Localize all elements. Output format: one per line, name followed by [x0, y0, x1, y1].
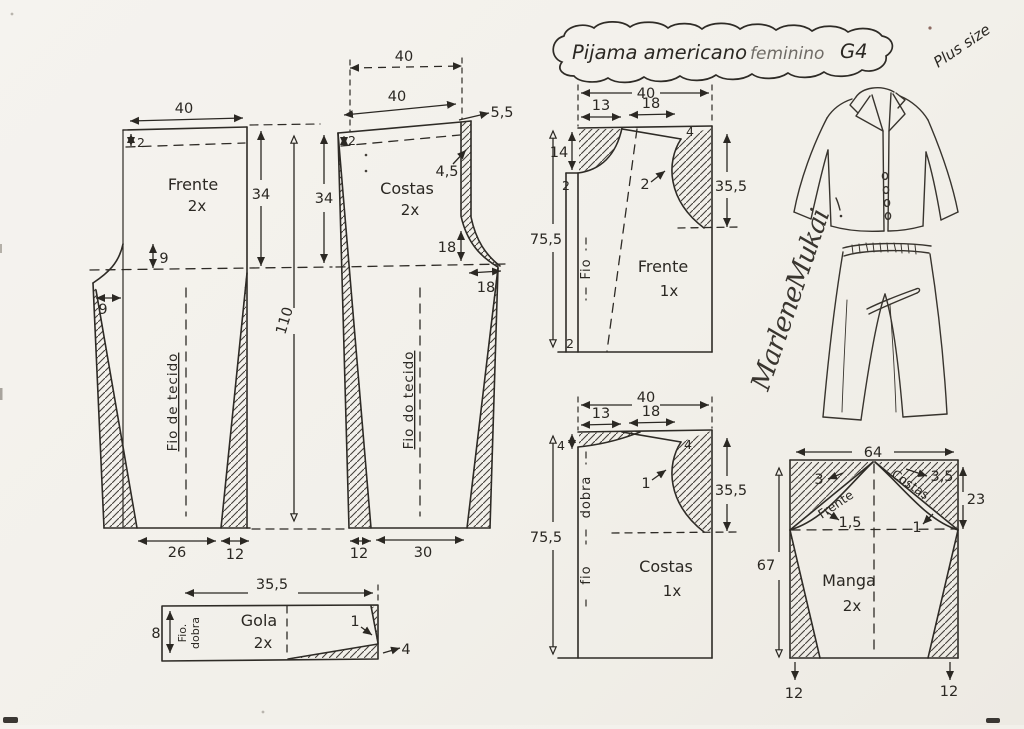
designer-signature: MarleneMukai [745, 205, 836, 395]
dim-collar-tip: 1 [350, 614, 359, 630]
dim-pants-back-hem-cut: 12 [350, 546, 368, 562]
top-back-grain-label: fio [579, 565, 594, 584]
dim-pants-front-side: 34 [252, 187, 270, 203]
plus-size-note: Plus size [930, 20, 993, 71]
top-front-qty: 1x [660, 282, 679, 300]
hatched-area [93, 284, 136, 527]
dim-pants-back-side: 34 [315, 191, 333, 207]
dim-pants-front-casing: 2 [137, 135, 145, 150]
top-back-label: Costas [639, 557, 693, 576]
underarm-line [612, 532, 738, 533]
dim-top-front-placket: 2 [562, 178, 570, 193]
dim-pants-back-hip-curve: 18 [438, 240, 456, 256]
dim-pants-front-crotch-ext: 9 [98, 302, 107, 318]
dim-sleeve-notch-front: 1,5 [838, 515, 861, 531]
dim-pants-front-hip-curve: 9 [159, 251, 168, 267]
dim-sleeve-cap-height: 23 [967, 492, 985, 508]
dim-top-back-shoulder: 18 [642, 404, 660, 420]
pants-front-label: Frente [168, 175, 218, 194]
title-audience: feminino [750, 44, 824, 64]
dim-sleeve-notch-back: 1 [912, 520, 921, 536]
dim-top-front-length: 75,5 [530, 232, 562, 248]
dim-sleeve-hem-left: 12 [785, 686, 803, 702]
dim-pants-back-seam-drop: 4,5 [435, 164, 458, 180]
dim-pants-back-waist-guide: 40 [395, 49, 413, 65]
dim-top-front-neck-width: 13 [592, 98, 610, 114]
dim-collar-width: 35,5 [256, 577, 288, 593]
top-back-piece [558, 397, 738, 658]
title-size: G4 [840, 40, 868, 63]
dim-top-front-shoulder-drop: 4 [686, 124, 694, 139]
title-cloud: Pijama americano feminino G4 [553, 22, 892, 83]
dim-sleeve-cap-front: 3 [814, 472, 823, 488]
top-front-piece [558, 85, 740, 352]
collar-fold-label: dobra [189, 617, 202, 649]
pants-front-qty: 2x [188, 197, 207, 215]
dim-pants-back-waist: 40 [388, 89, 406, 105]
pants-front-grain-label: Fio de tecido [165, 353, 181, 452]
collar-grain-label: Fio. [176, 624, 189, 643]
top-back-qty: 1x [663, 582, 682, 600]
pants-back-qty: 2x [401, 201, 420, 219]
dim-pants-front-hem-cut: 12 [226, 547, 244, 563]
dim-pants-front-length: 110 [273, 305, 296, 336]
dim-pants-front-hem: 26 [168, 545, 186, 561]
dim-sleeve-length: 67 [757, 558, 775, 574]
hatched-area [461, 121, 500, 268]
pants-back-grain-label: Fio do tecido [401, 351, 417, 450]
dim-sleeve-cap-back: 3,5 [930, 469, 953, 485]
dim-collar-height: 8 [151, 626, 160, 642]
dim-top-back-neck-depth: 4 [557, 438, 565, 453]
dim-collar-end: 4 [401, 642, 410, 658]
dim-pants-back-rise-ext: 5,5 [490, 105, 513, 121]
sleeve-label: Manga [822, 571, 876, 590]
casing-line [341, 135, 460, 146]
underarm-line [678, 227, 740, 228]
dim-top-front-side: 35,5 [715, 179, 747, 195]
sewing-pattern-sheet: Pijama americano feminino G4 Plus size F… [0, 0, 1024, 725]
collar-dimensions [170, 593, 400, 653]
dim-pants-back-casing: 2 [348, 133, 356, 148]
sleeve-piece [790, 460, 958, 658]
dim-top-front-shoulder: 18 [642, 96, 660, 112]
top-back-fold-label: dobra [579, 476, 594, 519]
dim-pants-back-crotch-ext: 18 [477, 280, 495, 296]
top-front-grain-label: Fio [579, 258, 594, 279]
dim-top-back-length: 75,5 [530, 530, 562, 546]
dim-sleeve-hem-right: 12 [940, 684, 958, 700]
roll-line [607, 129, 637, 351]
collar-qty: 2x [254, 634, 273, 652]
dim-pants-front-waist: 40 [175, 101, 193, 117]
hip-line [336, 264, 506, 267]
dim-top-front-armhole: 2 [640, 177, 649, 193]
dim-top-back-neck-width: 13 [592, 406, 610, 422]
collar-label: Gola [241, 611, 277, 630]
dim-top-front-hem: 2 [566, 336, 574, 351]
hip-line [90, 267, 332, 270]
title-text: Pijama americano [572, 41, 747, 64]
sleeve-qty: 2x [843, 597, 862, 615]
dim-pants-back-hem: 30 [414, 545, 432, 561]
pants-back-label: Costas [380, 179, 434, 198]
dim-top-back-armhole: 1 [641, 476, 650, 492]
dim-top-back-shoulder-drop: 4 [684, 437, 692, 452]
dim-top-front-neck-depth: 14 [550, 145, 568, 161]
dim-top-back-side: 35,5 [715, 483, 747, 499]
top-front-label: Frente [638, 257, 688, 276]
dim-sleeve-width: 64 [864, 445, 882, 461]
